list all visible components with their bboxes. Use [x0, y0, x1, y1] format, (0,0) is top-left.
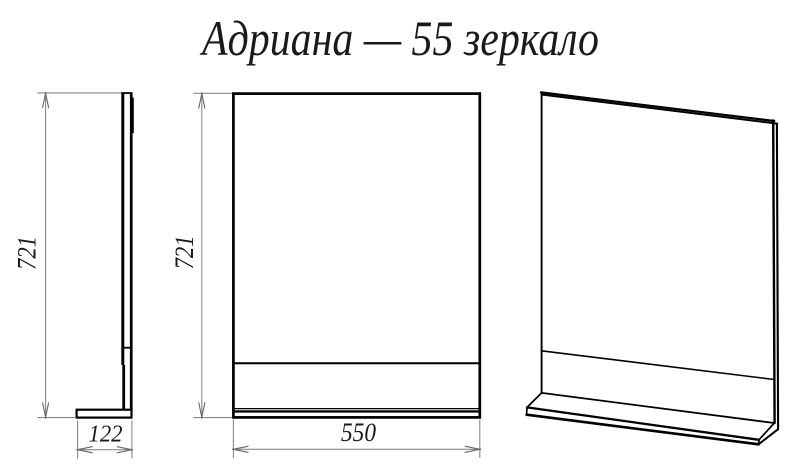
svg-text:550: 550 — [341, 418, 376, 447]
svg-text:Адриана — 55 зеркало: Адриана — 55 зеркало — [199, 10, 599, 66]
svg-text:721: 721 — [13, 236, 42, 270]
svg-text:122: 122 — [89, 420, 123, 447]
svg-text:721: 721 — [170, 235, 199, 269]
